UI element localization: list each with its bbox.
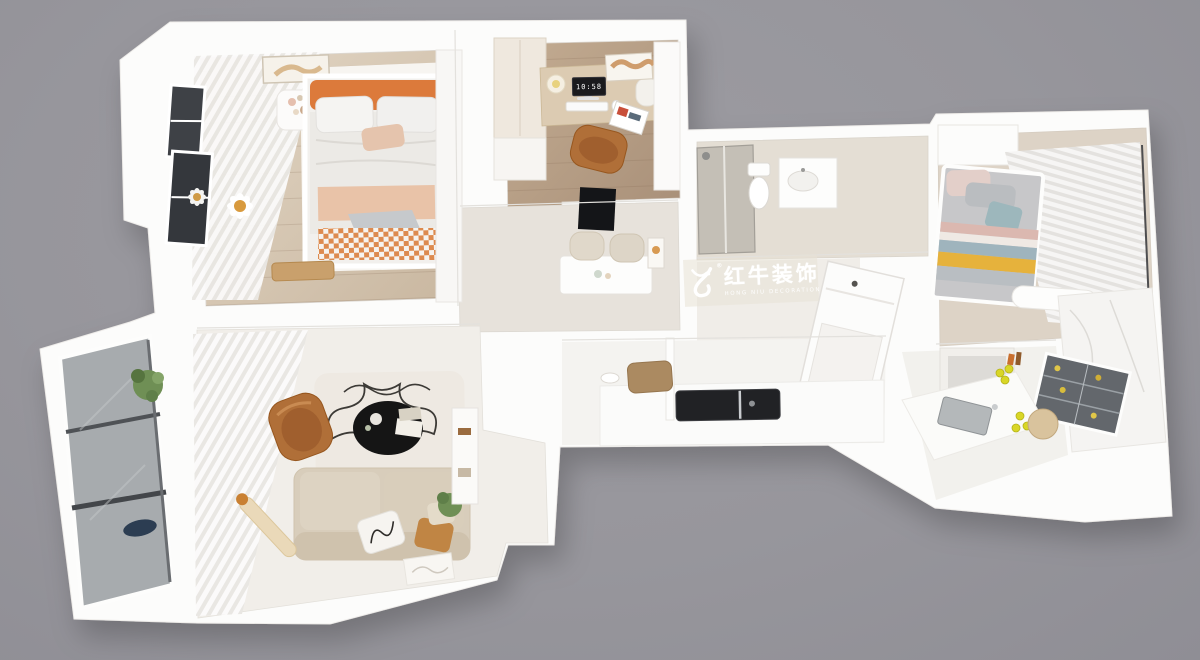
cutting-board bbox=[1028, 409, 1058, 439]
floor-plan-canvas bbox=[0, 0, 1200, 660]
study-side-cabinet bbox=[654, 42, 680, 190]
black-cooktop bbox=[676, 389, 781, 421]
table-flowers bbox=[370, 413, 382, 425]
toilet bbox=[748, 163, 770, 209]
daisy-wall-decor bbox=[227, 193, 253, 219]
striped-blanket bbox=[936, 222, 1039, 288]
master-bed bbox=[305, 76, 453, 266]
bookshelf bbox=[452, 408, 478, 504]
keyboard bbox=[566, 102, 608, 111]
master-bedroom bbox=[160, 50, 462, 302]
monitor-base bbox=[577, 97, 599, 100]
shower-head bbox=[702, 152, 710, 160]
gingham-runner bbox=[318, 228, 450, 260]
bench-cushion bbox=[627, 361, 673, 394]
dining-chair bbox=[570, 232, 604, 260]
floor-plan-render: ® 红牛装饰 HONG NIU DECORATION 10:58 bbox=[0, 0, 1200, 660]
pillow bbox=[315, 96, 373, 133]
wood-bench bbox=[272, 261, 335, 281]
map-art bbox=[605, 53, 654, 81]
dish bbox=[601, 373, 619, 383]
sofa bbox=[294, 468, 470, 560]
black-coffee-table bbox=[353, 401, 423, 455]
bed2 bbox=[932, 165, 1043, 305]
vanity-sink bbox=[779, 158, 837, 208]
balcony bbox=[60, 336, 172, 608]
dining-chair bbox=[610, 234, 644, 262]
study-cabinet bbox=[494, 138, 546, 180]
bedroom2-wardrobe bbox=[938, 125, 1018, 165]
wall-tv bbox=[578, 187, 616, 231]
